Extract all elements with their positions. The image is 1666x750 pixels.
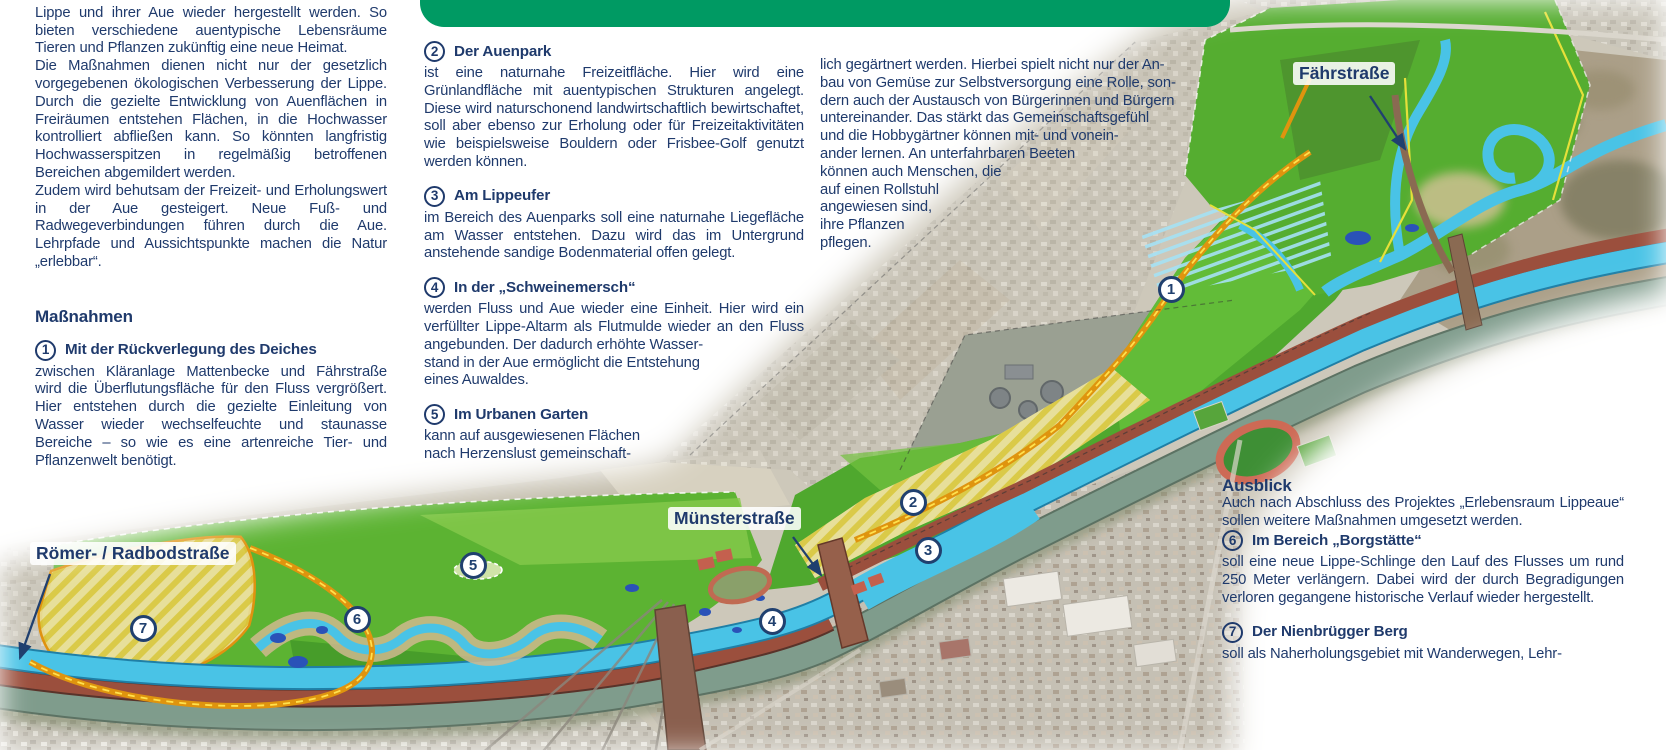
ausblick-heading: Ausblick	[1222, 477, 1624, 495]
intro-column: liche Maßnahmen soll der natürliche Char…	[35, 0, 387, 484]
map-marker-5: 5	[460, 552, 487, 579]
ausblick-section: Ausblick Auch nach Abschluss des Projekt…	[1222, 477, 1624, 678]
brochure-page: liche Maßnahmen soll der natürliche Char…	[0, 0, 1666, 750]
item-number-badge: 7	[1222, 622, 1243, 643]
item-number-badge: 6	[1222, 530, 1243, 551]
map-marker-2: 2	[900, 489, 927, 516]
continuation-column: lich gegärtnert werden. Hierbei spielt n…	[820, 57, 1240, 253]
item-title: Mit der Rückverlegung des Deiches	[65, 341, 317, 359]
intro-paragraph-3: Zudem wird behutsam der Freizeit- und Er…	[35, 183, 387, 272]
item-body: soll eine neue Lippe-Schlinge den Lauf d…	[1222, 554, 1624, 607]
ausblick-items-container: 6Im Bereich „Borgstätte“soll eine neue L…	[1222, 530, 1624, 663]
ausblick-intro: Auch nach Abschluss des Projektes „Erleb…	[1222, 495, 1624, 531]
item-number-badge: 5	[424, 404, 445, 425]
map-marker-7: 7	[130, 615, 157, 642]
massnahme-item-5: 5Im Urbanen Gartenkann auf ausgewiesenen…	[424, 404, 804, 464]
item-body: ist eine naturnahe Freizeitfläche. Hier …	[424, 65, 804, 172]
header-band	[420, 0, 1230, 27]
intro-paragraph-1: Lippe und ihrer Aue wieder hergestellt w…	[35, 5, 387, 58]
item-body: im Bereich des Auenparks soll eine natur…	[424, 210, 804, 263]
item-body: werden Fluss und Aue wieder eine Einheit…	[424, 301, 804, 390]
item-number-badge: 4	[424, 277, 445, 298]
ausblick-item-7: 7Der Nienbrügger Bergsoll als Naherholun…	[1222, 622, 1624, 664]
map-marker-1: 1	[1158, 276, 1185, 303]
massnahmen-heading: Maßnahmen	[35, 308, 387, 326]
item-number-badge: 2	[424, 41, 445, 62]
item-number-badge: 1	[35, 340, 56, 361]
item-number-badge: 3	[424, 186, 445, 207]
item-title: Der Nienbrügger Berg	[1252, 623, 1408, 641]
item-title: Im Urbanen Garten	[454, 406, 588, 424]
massnahmen-item-1-container: 1Mit der Rückverlegung des Deicheszwisch…	[35, 340, 387, 471]
massnahme-item-4: 4In der „Schweinemersch“werden Fluss und…	[424, 277, 804, 390]
item-body: zwischen Kläranlage Mattenbecke und Fähr…	[35, 364, 387, 471]
item-title: In der „Schweinemersch“	[454, 279, 635, 297]
item-title: Am Lippeufer	[454, 187, 550, 205]
massnahme-item-2: 2Der Auenparkist eine naturnahe Freizeit…	[424, 41, 804, 172]
map-label-muensterstrasse: Münsterstraße	[668, 507, 801, 530]
map-marker-4: 4	[759, 608, 786, 635]
massnahmen-column: 2Der Auenparkist eine naturnahe Freizeit…	[424, 41, 804, 478]
item-body: kann auf ausgewiesenen Flächen nach Herz…	[424, 428, 804, 464]
massnahmen-items-container: 2Der Auenparkist eine naturnahe Freizeit…	[424, 41, 804, 464]
map-marker-6: 6	[344, 606, 371, 633]
intro-paragraph-2: Die Maßnahmen dienen nicht nur der geset…	[35, 58, 387, 183]
item-body: soll als Naherholungsgebiet mit Wanderwe…	[1222, 646, 1624, 664]
map-label-roemer-radbodstrasse: Römer- / Radbodstraße	[30, 542, 236, 565]
map-marker-3: 3	[915, 537, 942, 564]
massnahme-item-1: 1Mit der Rückverlegung des Deicheszwisch…	[35, 340, 387, 471]
massnahme-item-3: 3Am Lippeuferim Bereich des Auenparks so…	[424, 186, 804, 263]
map-label-faehrstrasse: Fährstraße	[1293, 62, 1395, 85]
ausblick-item-6: 6Im Bereich „Borgstätte“soll eine neue L…	[1222, 530, 1624, 607]
item-title: Der Auenpark	[454, 43, 551, 61]
item-title: Im Bereich „Borgstätte“	[1252, 532, 1422, 550]
